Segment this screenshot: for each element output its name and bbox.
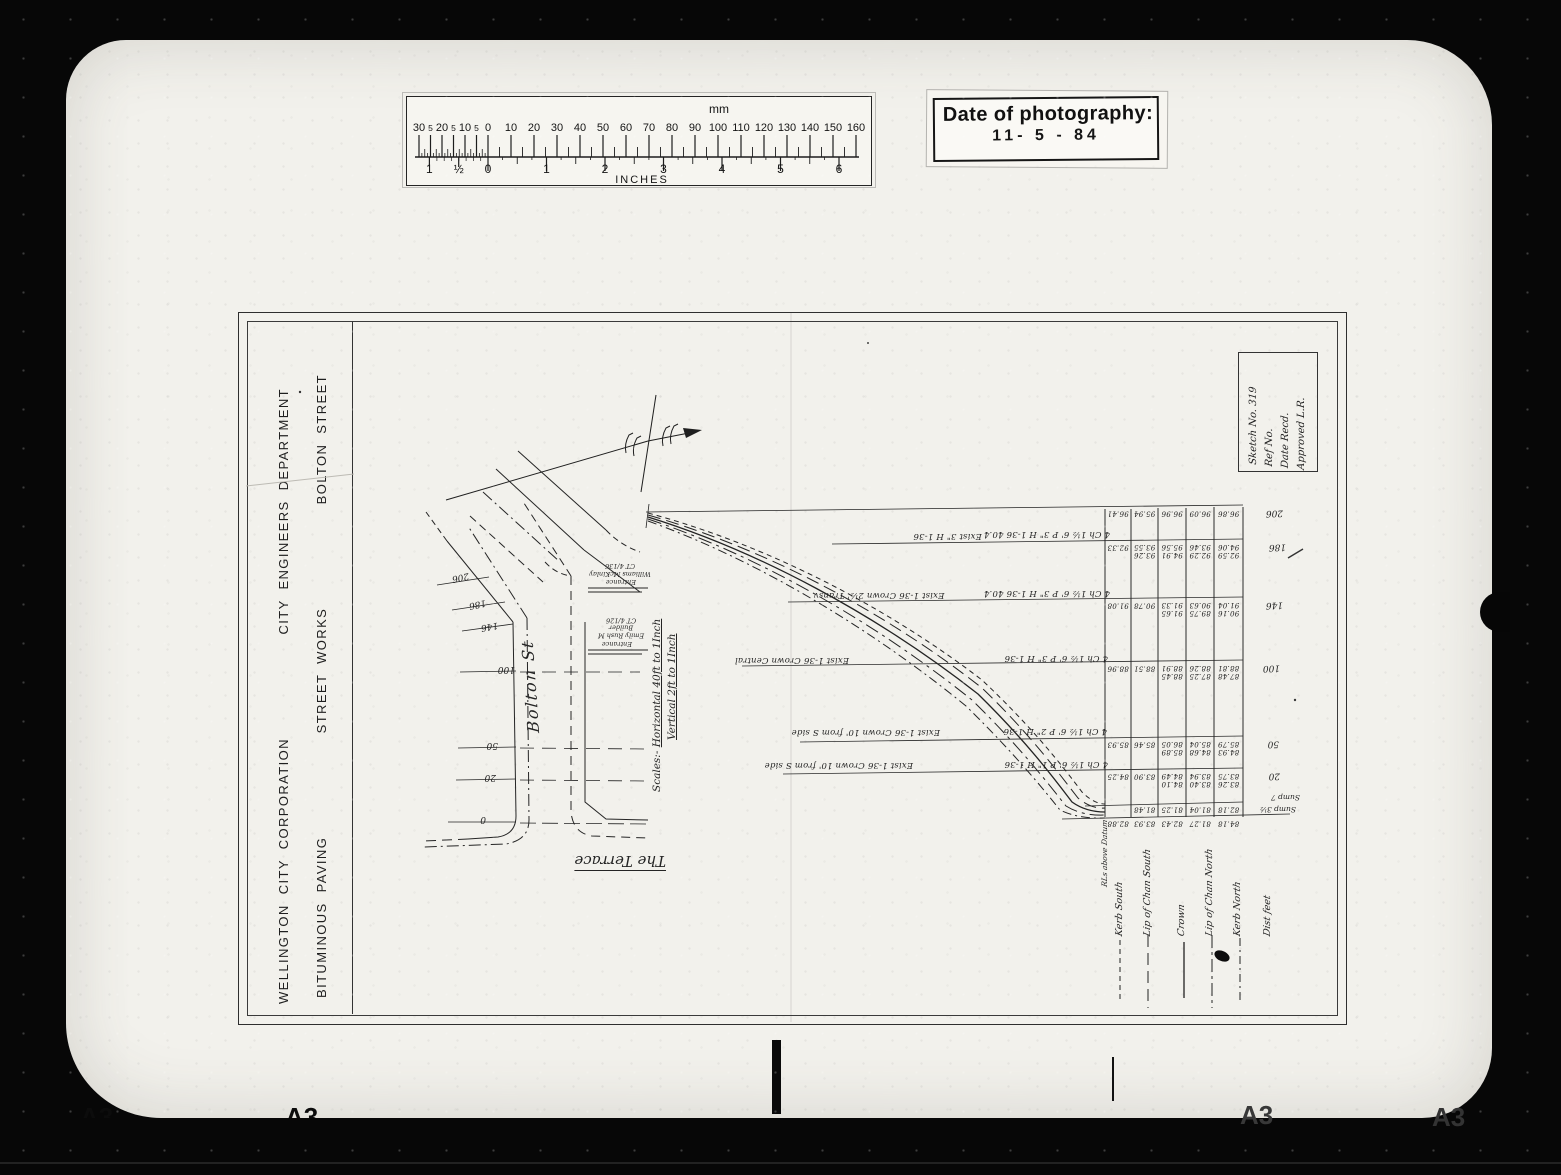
ruler-label: 5 <box>474 123 479 133</box>
table-distance-label: 50 <box>1249 738 1279 749</box>
sump-note: Sump 3½ <box>1252 805 1296 814</box>
ruler-label: 150 <box>824 122 842 134</box>
film-frame-mark-text: A3 <box>80 1102 132 1118</box>
date-stamp-title: Date of photography: <box>935 98 1157 127</box>
film-frame-mark: A3 <box>80 1102 132 1118</box>
table-cell: 90.16 91.04 <box>1215 601 1242 616</box>
scale-line-2: Vertical 2ft to 1Inch <box>665 564 680 792</box>
scale-intro: Scales:- <box>651 751 663 792</box>
film-frame-mark: A3 <box>1240 1100 1292 1132</box>
table-cell: 85.46 <box>1132 740 1157 748</box>
table-distance-label: 146 <box>1253 599 1283 610</box>
table-cell: 87.48 88.81 <box>1215 664 1242 679</box>
table-cell: 84.68 85.04 <box>1187 740 1213 755</box>
ruler-label: INCHES <box>615 174 669 185</box>
section-note-existing: Exist 1-36 Crown Central <box>745 655 849 665</box>
date-stamp: Date of photography: 11- 5 - 84 <box>933 96 1160 162</box>
scale-vertical: Vertical 2ft to 1Inch <box>666 633 678 740</box>
table-distance-label: 206 <box>1253 507 1283 518</box>
legend-item-label: Lip of Chan South <box>1142 797 1158 938</box>
table-cell: 87.25 88.26 <box>1187 664 1213 679</box>
ruler-label: 20 <box>436 122 448 134</box>
ruler-label: 5 <box>428 123 433 133</box>
plan-lot-label: Emily Rush M Builder CT 4/126 <box>588 616 654 639</box>
section-note-existing: Exist 1-36 Crown 10' from S side <box>798 727 940 737</box>
section-note-existing: Exist 1-36 Crown 10' from S side <box>783 760 913 770</box>
ruler-label: 6 <box>836 162 843 176</box>
table-cell: 91.65 91.33 <box>1159 601 1185 616</box>
table-cell: 96.96 <box>1159 509 1185 517</box>
table-cell: 82.43 <box>1159 819 1185 827</box>
ruler-label: ½ <box>454 162 464 176</box>
table-cell: 83.90 <box>1132 772 1157 780</box>
ruler-label: 70 <box>643 122 655 134</box>
plan-chainage-label: 50 <box>470 740 498 750</box>
ruler-label: 90 <box>689 122 701 134</box>
legend-item-label: Kerb South <box>1114 847 1130 938</box>
department-name: CITY ENGINEERS DEPARTMENT <box>276 324 298 635</box>
sump-note: Sump 7 <box>1256 793 1300 802</box>
film-frame-mark: A3 <box>1432 1102 1484 1134</box>
sketch-box-line: Approved L.R. <box>1294 361 1310 471</box>
film-frame-mark-text: A3 <box>1240 1100 1292 1131</box>
section-note-proposed: 4 Ch 1½ 6' P 1" H 1-36 <box>1032 759 1108 769</box>
table-cell: 88.45 88.91 <box>1159 664 1185 679</box>
table-cell: 92.33 <box>1106 543 1130 551</box>
table-cell: 83.26 83.75 <box>1215 772 1242 787</box>
measuring-ruler: mm30520510501020304050607080901001101201… <box>406 96 872 186</box>
section-note-existing: Exist 3" H 1-36 <box>900 531 995 541</box>
table-cell: 88.51 <box>1132 664 1157 672</box>
table-distance-label: 20 <box>1250 770 1280 781</box>
organisation-name: WELLINGTON CITY CORPORATION <box>276 738 298 1012</box>
table-cell: 92.29 93.46 <box>1187 543 1213 558</box>
table-cell: 93.26 93.55 <box>1132 543 1157 558</box>
ruler-label: 30 <box>551 122 563 134</box>
sketch-box-line: Ref No. <box>1262 358 1278 468</box>
ruler-label: mm <box>709 102 729 116</box>
table-cell: 96.09 <box>1187 509 1213 517</box>
table-cell: 96.41 <box>1106 509 1130 517</box>
table-distance-label: 186 <box>1256 541 1286 552</box>
table-cell: 84.93 85.79 <box>1215 740 1242 755</box>
plan-scale-note: Scales:- Horizontal 40ft to 1Inch Vertic… <box>650 564 692 792</box>
scale-line-1: Scales:- Horizontal 40ft to 1Inch <box>650 564 665 792</box>
work-type: BITUMINOUS PAVING <box>314 837 336 1012</box>
frame-registration-bar <box>772 1040 781 1114</box>
ruler-label: 10 <box>459 122 471 134</box>
section-note-proposed: 4 Ch 1½ 6' P 3" H 1-36 <box>1010 653 1108 663</box>
legend-item-label: Dist feet <box>1262 857 1278 938</box>
legend-item-label: Crown <box>1176 877 1192 938</box>
title-block-line-2: BITUMINOUS PAVING STREET WORKS BOLTON ST… <box>314 324 336 1012</box>
table-cell: 95.94 <box>1132 509 1157 517</box>
table-cell: 83.40 83.94 <box>1187 772 1213 787</box>
film-frame-mark-text: A3 <box>285 1102 337 1118</box>
table-cell: 82.88 <box>1106 819 1130 827</box>
plan-chainage-label: 100 <box>487 664 515 674</box>
ruler-label: 2 <box>602 162 609 176</box>
table-cell: 85.89 86.05 <box>1159 740 1185 755</box>
section-note-proposed: 4 Ch 1½ 6' P 2" H 1-36 <box>1015 726 1107 736</box>
ruler-label: 110 <box>732 122 750 134</box>
film-background: mm30520510501020304050607080901001101201… <box>0 0 1561 1175</box>
ruler-scale: mm30520510501020304050607080901001101201… <box>407 97 871 185</box>
ruler-label: 30 <box>413 122 425 134</box>
table-cell: 96.86 <box>1215 509 1242 517</box>
plan-chainage-label: 20 <box>468 772 496 782</box>
table-cell: 92.59 94.06 <box>1215 543 1242 558</box>
ruler-label: 5 <box>777 162 784 176</box>
ruler-label: 1 <box>543 162 550 176</box>
plan-entrance-label: Entrance <box>596 578 636 586</box>
ruler-label: 60 <box>620 122 632 134</box>
legend-item-label: Kerb North <box>1232 847 1248 938</box>
plan-lot-label: Williams McKinlay CT 4/136 <box>585 562 655 577</box>
film-bottom-seam <box>0 1162 1561 1164</box>
sketch-box-line: Date Recd. <box>1278 359 1294 469</box>
ruler-label: 0 <box>485 162 492 176</box>
table-cell: 90.78 <box>1132 601 1157 609</box>
title-block-line-1: WELLINGTON CITY CORPORATION CITY ENGINEE… <box>276 324 298 1012</box>
ruler-label: 100 <box>709 122 727 134</box>
ruler-label: 1 <box>426 162 433 176</box>
ruler-label: 140 <box>801 122 819 134</box>
ruler-label: 4 <box>719 162 726 176</box>
title-block-divider <box>352 321 353 1014</box>
sketch-box-line: Sketch No. 319 <box>1246 356 1262 466</box>
ruler-label: 40 <box>574 122 586 134</box>
film-frame-mark: A3 <box>285 1102 337 1118</box>
section-note-proposed: 4 Ch 1½ 6' P 3" H 1-36 40.4 <box>998 529 1110 539</box>
street-name: BOLTON STREET <box>314 324 336 504</box>
plan-chainage-label: 0 <box>458 814 486 824</box>
frame-registration-line <box>1112 1057 1114 1101</box>
section-note-proposed: 4 Ch 1½ 6' P 3" H 1-36 40.4 <box>1000 588 1110 598</box>
table-distance-label: 100 <box>1250 662 1280 673</box>
works-label: STREET WORKS <box>314 608 336 734</box>
legend-item-label: Lip of Chan North <box>1204 797 1220 938</box>
ruler-label: 20 <box>528 122 540 134</box>
table-cell: 89.75 90.63 <box>1187 601 1213 616</box>
ruler-label: 5 <box>451 123 456 133</box>
ruler-label: 10 <box>505 122 517 134</box>
section-note-existing: Exist 1-36 Crown 2½' Transv <box>795 590 963 600</box>
ruler-label: 0 <box>485 122 491 134</box>
table-cell: 88.96 <box>1106 664 1130 672</box>
plan-terrace-label: The Terrace <box>548 848 666 870</box>
sketch-box-text: Sketch No. 319Ref No.Date Recd.Approved … <box>1246 356 1312 471</box>
plan-entrance-label: Entrance <box>592 640 632 648</box>
ruler-label: 120 <box>755 122 773 134</box>
table-cell: 94.91 95.56 <box>1159 543 1185 558</box>
table-cell: 81.25 <box>1159 805 1185 813</box>
film-frame-mark-text: A3 <box>1432 1102 1484 1133</box>
ruler-label: 130 <box>778 122 796 134</box>
date-stamp-value: 11- 5 - 84 <box>935 126 1157 146</box>
ruler-label: 80 <box>666 122 678 134</box>
ruler-label: 50 <box>597 122 609 134</box>
table-cell: 91.08 <box>1106 601 1130 609</box>
table-cell: 84.10 84.49 <box>1159 772 1185 787</box>
table-cell: 85.93 <box>1106 740 1130 748</box>
table-cell: 84.25 <box>1106 772 1130 780</box>
ruler-label: 160 <box>847 122 865 134</box>
